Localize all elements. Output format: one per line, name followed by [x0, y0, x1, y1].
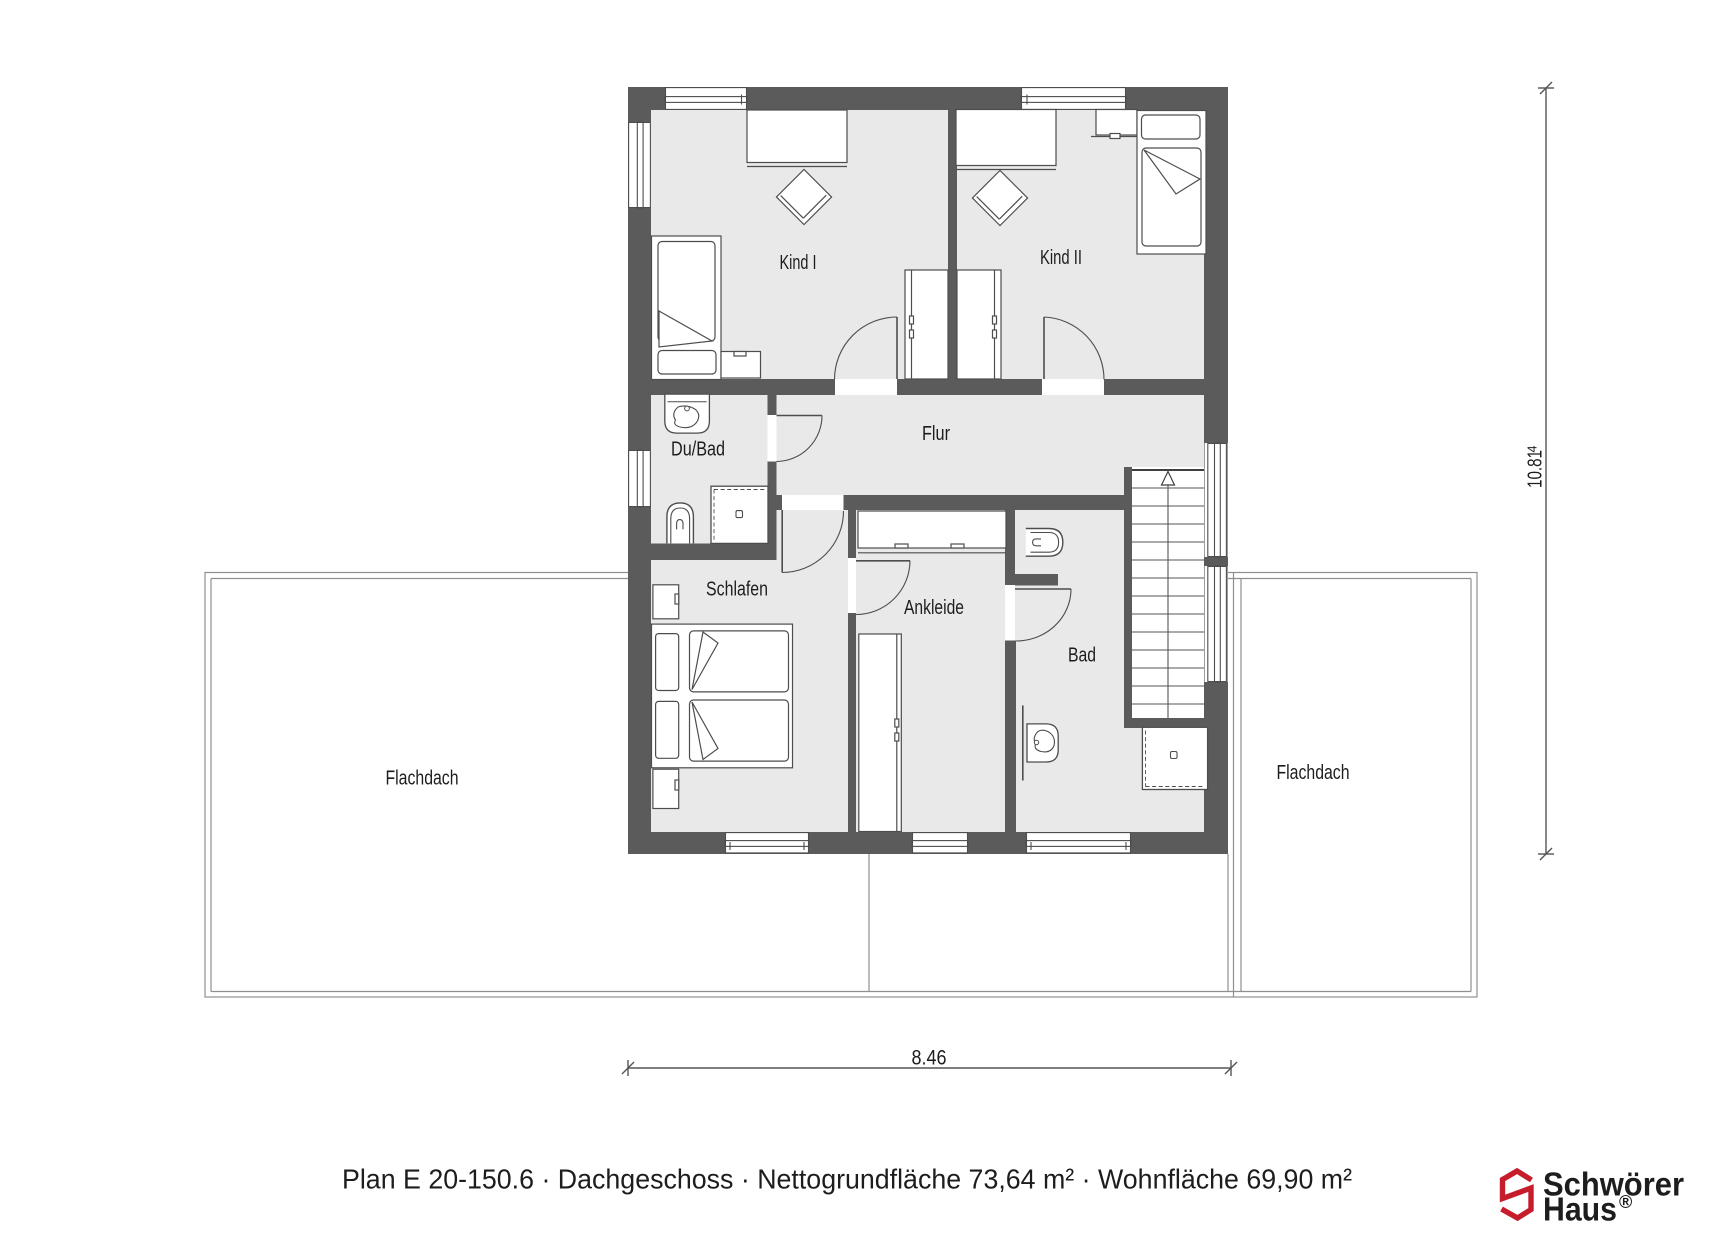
- svg-text:Bad: Bad: [1068, 645, 1096, 667]
- svg-text:Plan E 20-150.6 · Dachgeschoss: Plan E 20-150.6 · Dachgeschoss · Nettogr…: [342, 1164, 1352, 1195]
- svg-text:Du/Bad: Du/Bad: [671, 439, 725, 461]
- svg-text:Flachdach: Flachdach: [386, 768, 459, 790]
- svg-text:Ankleide: Ankleide: [904, 597, 964, 619]
- svg-text:4: 4: [1526, 446, 1540, 453]
- svg-text:Haus: Haus: [1543, 1191, 1617, 1228]
- svg-text:Kind II: Kind II: [1040, 247, 1082, 269]
- svg-text:®: ®: [1619, 1192, 1632, 1212]
- svg-text:8.46: 8.46: [912, 1047, 947, 1070]
- svg-text:Flur: Flur: [922, 423, 950, 445]
- svg-text:Kind I: Kind I: [780, 252, 817, 274]
- svg-text:10.81: 10.81: [1525, 450, 1547, 488]
- svg-text:Flachdach: Flachdach: [1277, 762, 1350, 784]
- svg-text:Schlafen: Schlafen: [706, 579, 768, 601]
